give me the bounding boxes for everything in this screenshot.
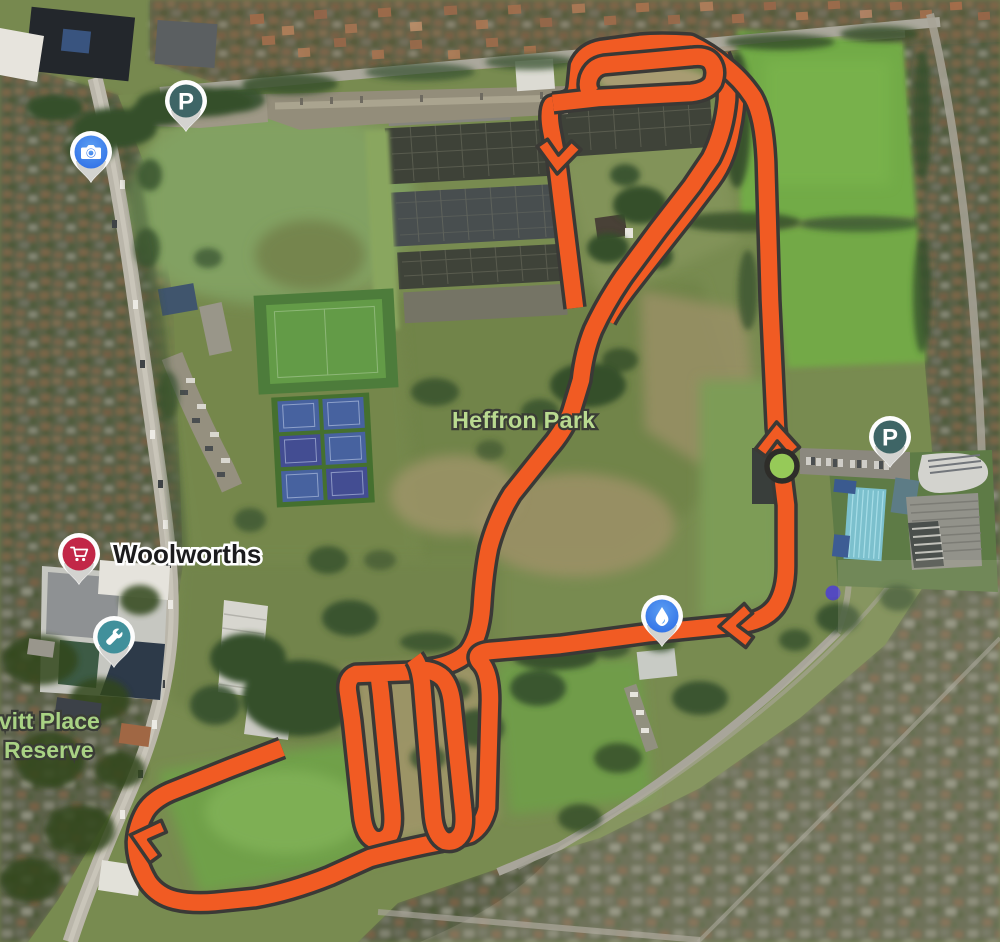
svg-text:evitt Place: evitt Place	[0, 708, 100, 734]
svg-text:P: P	[178, 89, 194, 116]
svg-text:Heffron Park: Heffron Park	[452, 407, 596, 433]
svg-text:P: P	[882, 425, 898, 452]
svg-text:Reserve: Reserve	[4, 737, 94, 763]
svg-text:Woolworths: Woolworths	[113, 539, 261, 569]
